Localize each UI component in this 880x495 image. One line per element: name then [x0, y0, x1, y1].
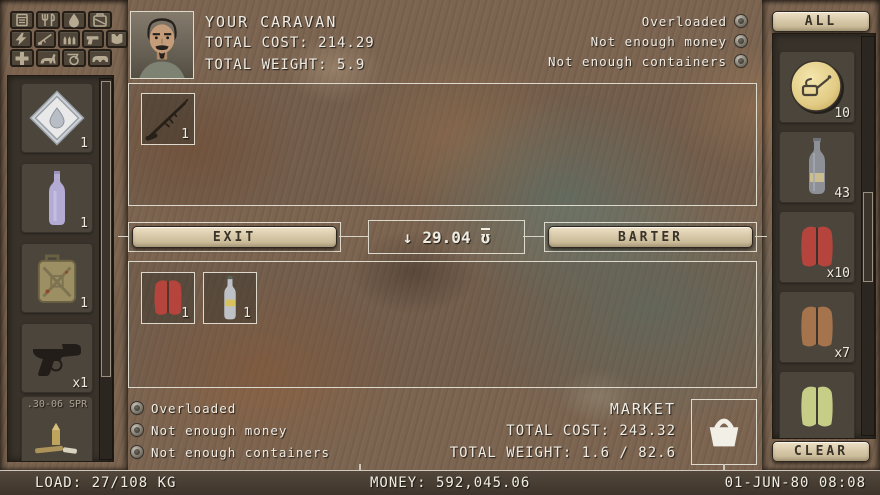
tools-icon: [38, 12, 58, 28]
market-offer-panel: 1 1: [128, 261, 757, 388]
left-scrollbar-thumb[interactable]: [101, 81, 111, 377]
warning-label: Not enough money: [151, 423, 287, 438]
market-total-weight: TOTAL WEIGHT: 1.6 / 82.6: [450, 445, 676, 461]
filter-energy-button[interactable]: [10, 30, 32, 48]
rifle-ammo-icon: [29, 421, 85, 457]
barter-button[interactable]: BARTER: [548, 226, 753, 248]
water-pouch-icon: [29, 90, 85, 146]
item-quantity: 1: [181, 127, 189, 142]
item-slot-wine-bottle[interactable]: 43: [779, 131, 855, 203]
item-quantity: 1: [80, 296, 88, 311]
water-drop-icon: [64, 12, 84, 28]
offer-slot-red-jacket[interactable]: 1: [141, 272, 195, 324]
warning-label: Not enough containers: [151, 445, 330, 460]
item-quantity: x1: [72, 376, 88, 391]
money-indicator-lamp: [131, 424, 143, 436]
item-slot-oil-coin[interactable]: 10: [779, 51, 855, 123]
exit-button-frame: EXIT: [128, 222, 341, 252]
vehicle-icon: [90, 50, 110, 66]
right-scrollbar-thumb[interactable]: [863, 192, 873, 282]
ammo-caliber-label: .30-06 SPR: [21, 399, 93, 410]
ammo-icon: [60, 31, 78, 47]
item-slot-jerrycan[interactable]: 1: [21, 243, 93, 313]
item-quantity: 1: [80, 216, 88, 231]
item-quantity: x10: [827, 266, 850, 281]
containers-indicator-lamp: [735, 55, 747, 67]
warning-label: Overloaded: [151, 401, 236, 416]
filter-canned-food-button[interactable]: [10, 11, 34, 29]
item-quantity: x7: [834, 346, 850, 361]
armor-vest-icon: [108, 31, 126, 47]
filter-gun-button[interactable]: [82, 30, 104, 48]
item-slot-water-pouch[interactable]: 1: [21, 83, 93, 153]
item-quantity: 10: [834, 106, 850, 121]
left-scrollbar[interactable]: [99, 78, 113, 460]
filter-row-1: [10, 11, 110, 29]
filter-medicine-button[interactable]: [10, 49, 34, 67]
rifle-icon: [36, 31, 54, 47]
load-readout: LOAD: 27/108 KG: [35, 475, 176, 491]
filter-animal-button[interactable]: [36, 49, 60, 67]
jerrycan-icon: [90, 12, 110, 28]
connector-line: [755, 236, 767, 237]
caravan-warning-containers: Not enough containers: [548, 54, 747, 68]
datetime-readout: 01-JUN-80 08:08: [725, 475, 866, 491]
warning-label: Not enough money: [591, 34, 727, 49]
lightning-icon: [12, 31, 30, 47]
status-bar: LOAD: 27/108 KG MONEY: 592,045.06 01-JUN…: [0, 470, 880, 495]
filter-water-button[interactable]: [62, 11, 86, 29]
trade-screen: 1 1 1 x1: [0, 0, 880, 495]
filter-armor-button[interactable]: [106, 30, 128, 48]
market-goods-list: 10 43 x10 x7: [772, 33, 876, 439]
jerrycan-item-icon: [34, 252, 80, 304]
currency-symbol-icon: ʊ: [481, 228, 491, 246]
offer-slot-hunting-rifle[interactable]: 1: [141, 93, 195, 145]
glass-bottle-icon: [219, 275, 241, 321]
wine-bottle-icon: [803, 137, 831, 197]
brown-jacket-icon: [795, 303, 839, 351]
transfer-direction-arrow-icon: ↓: [403, 228, 413, 247]
connector-line: [523, 236, 544, 237]
caravan-total-weight: TOTAL WEIGHT: 5.9: [205, 57, 365, 73]
filter-cart-button[interactable]: [62, 49, 86, 67]
clear-button[interactable]: CLEAR: [772, 441, 870, 462]
trade-balance-box: ↓ 29.04 ʊ: [368, 220, 525, 254]
filter-fuel-button[interactable]: [88, 11, 112, 29]
horse-icon: [38, 50, 58, 66]
filter-row-3: [10, 49, 110, 67]
connector-line: [339, 236, 368, 237]
trade-balance-amount: 29.04: [422, 228, 470, 247]
market-warning-overloaded: Overloaded: [131, 401, 236, 415]
item-quantity: 1: [80, 136, 88, 151]
containers-indicator-lamp: [131, 446, 143, 458]
caravan-warning-overloaded: Overloaded: [642, 14, 747, 28]
market-warning-money: Not enough money: [131, 423, 287, 437]
item-slot-brown-jacket[interactable]: x7: [779, 291, 855, 363]
market-total-cost: TOTAL COST: 243.32: [506, 423, 676, 439]
overloaded-indicator-lamp: [131, 402, 143, 414]
item-slot-red-jacket[interactable]: x10: [779, 211, 855, 283]
item-slot-rifle-ammo[interactable]: .30-06 SPR: [21, 396, 93, 462]
filter-tools-button[interactable]: [36, 11, 60, 29]
right-scrollbar[interactable]: [861, 36, 875, 436]
lavender-bottle-icon: [42, 169, 72, 227]
caravan-warning-money: Not enough money: [591, 34, 747, 48]
item-quantity: 1: [181, 306, 189, 321]
market-basket-box: [691, 399, 757, 465]
item-quantity: 43: [834, 186, 850, 201]
player-portrait: [130, 11, 194, 79]
item-slot-lavender-bottle[interactable]: 1: [21, 163, 93, 233]
caravan-title: YOUR CARAVAN: [205, 13, 337, 31]
caravan-offer-panel: 1: [128, 83, 757, 206]
exit-button[interactable]: EXIT: [132, 226, 337, 248]
green-jacket-icon: [795, 383, 839, 431]
caravan-total-cost: TOTAL COST: 214.29: [205, 35, 375, 51]
warning-label: Not enough containers: [548, 54, 727, 69]
filter-row-2: [10, 30, 110, 48]
player-goods-list: 1 1 1 x1: [7, 75, 114, 462]
portrait-image: [131, 12, 193, 78]
money-indicator-lamp: [735, 35, 747, 47]
medical-cross-icon: [12, 50, 32, 66]
pistol-icon: [84, 31, 102, 47]
item-slot-green-jacket[interactable]: [779, 371, 855, 439]
overloaded-indicator-lamp: [735, 15, 747, 27]
luger-pistol-icon: [30, 338, 84, 378]
connector-line: [118, 236, 128, 237]
red-jacket-icon: [795, 223, 839, 271]
warning-label: Overloaded: [642, 14, 727, 29]
filter-ammo-button[interactable]: [58, 30, 80, 48]
all-button[interactable]: ALL: [772, 11, 870, 32]
filter-vehicle-button[interactable]: [88, 49, 112, 67]
money-readout: MONEY: 592,045.06: [370, 475, 530, 491]
filter-rifle-button[interactable]: [34, 30, 56, 48]
market-title: MARKET: [610, 400, 676, 418]
cart-icon: [64, 50, 84, 66]
basket-icon: [702, 411, 746, 453]
offer-slot-glass-bottle[interactable]: 1: [203, 272, 257, 324]
market-warning-containers: Not enough containers: [131, 445, 330, 459]
barter-button-frame: BARTER: [544, 222, 757, 252]
item-quantity: 1: [243, 306, 251, 321]
canned-food-icon: [12, 12, 32, 28]
item-slot-luger-pistol[interactable]: x1: [21, 323, 93, 393]
